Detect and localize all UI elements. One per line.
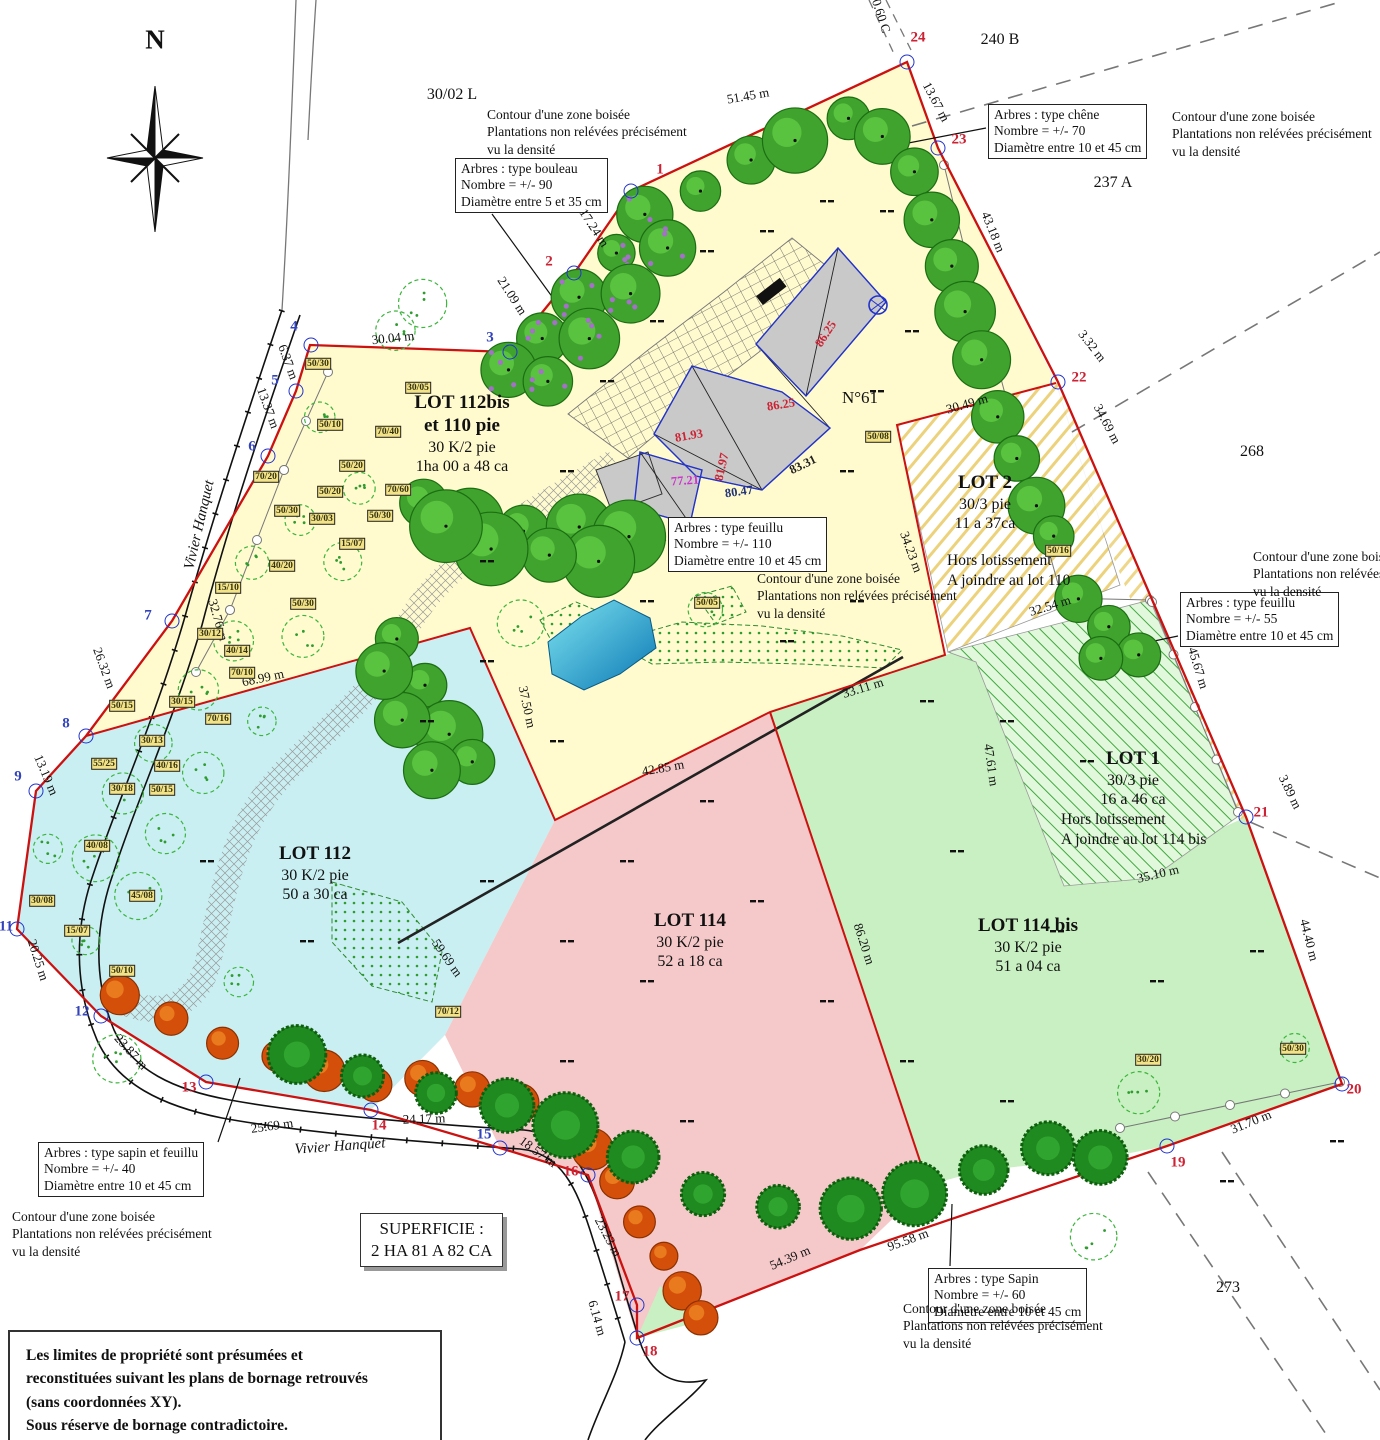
compass-rose	[107, 86, 203, 232]
site-plan: Arbres : type bouleau Nombre = +/- 90 Di…	[0, 0, 1380, 1440]
map-canvas	[0, 0, 1380, 1440]
